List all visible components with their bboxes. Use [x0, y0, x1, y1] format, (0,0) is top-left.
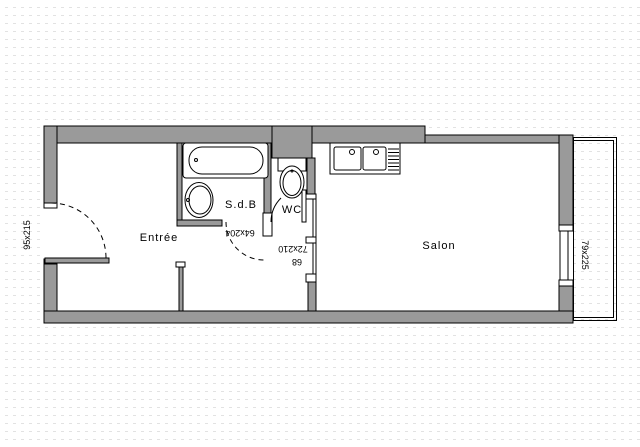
salon-window-frame	[560, 231, 568, 280]
floorplan-canvas: Entrée S.d.B WC Salon 95x215 64x204 72x2…	[0, 0, 640, 447]
balcony-outline-outer	[574, 138, 617, 321]
dim-sdb-door: 64x204	[225, 228, 255, 238]
dim-salon-door: 72x210	[278, 244, 308, 254]
room-label-sdb: S.d.B	[225, 199, 257, 211]
top-wall-right	[425, 135, 559, 143]
salon-wall-lower	[308, 282, 316, 311]
room-label-salon: Salon	[422, 240, 455, 252]
floorplan-page: Entrée S.d.B WC Salon 95x215 64x204 72x2…	[0, 0, 640, 447]
window-jamb-bottom	[559, 280, 573, 286]
salon-door-jamb-bottom	[306, 274, 316, 282]
kitchen-sink-counter	[330, 143, 400, 174]
left-wall-lower	[44, 264, 57, 311]
wc-right-wall-upper	[307, 158, 315, 194]
salon-door-leaf	[313, 199, 316, 237]
dim-entrance-door: 95x215	[22, 220, 32, 250]
sdb-wc-door-post	[263, 213, 272, 236]
balcony-outline-inner	[574, 141, 614, 318]
top-wall-left	[44, 126, 272, 143]
entree-stub-wall	[179, 264, 183, 311]
right-wall-upper	[559, 135, 573, 225]
top-wall-middle	[312, 126, 425, 143]
bottom-wall	[44, 311, 573, 323]
salon-door-jamb-middle	[306, 237, 316, 243]
entrance-door-jamb-top	[44, 203, 57, 208]
salon-door-opening-line	[313, 243, 316, 274]
window-jamb-top	[559, 225, 573, 231]
salon-door-jamb-top	[306, 194, 316, 199]
wc-door-leaf	[302, 190, 306, 222]
entrance-door-leaf	[45, 258, 109, 263]
left-wall-upper	[44, 126, 57, 203]
entree-stub-post	[176, 262, 185, 267]
room-label-wc: WC	[282, 204, 302, 216]
sdb-bottom-wall	[177, 220, 222, 226]
sdb-left-wall	[177, 143, 182, 225]
dim-salon-window: 79x225	[580, 240, 590, 270]
top-wall-wc-notch	[272, 126, 312, 158]
kitchen-sink-drainer	[388, 149, 399, 170]
room-label-entree: Entrée	[140, 232, 178, 244]
dim-salon-door-width: 68	[292, 257, 302, 267]
